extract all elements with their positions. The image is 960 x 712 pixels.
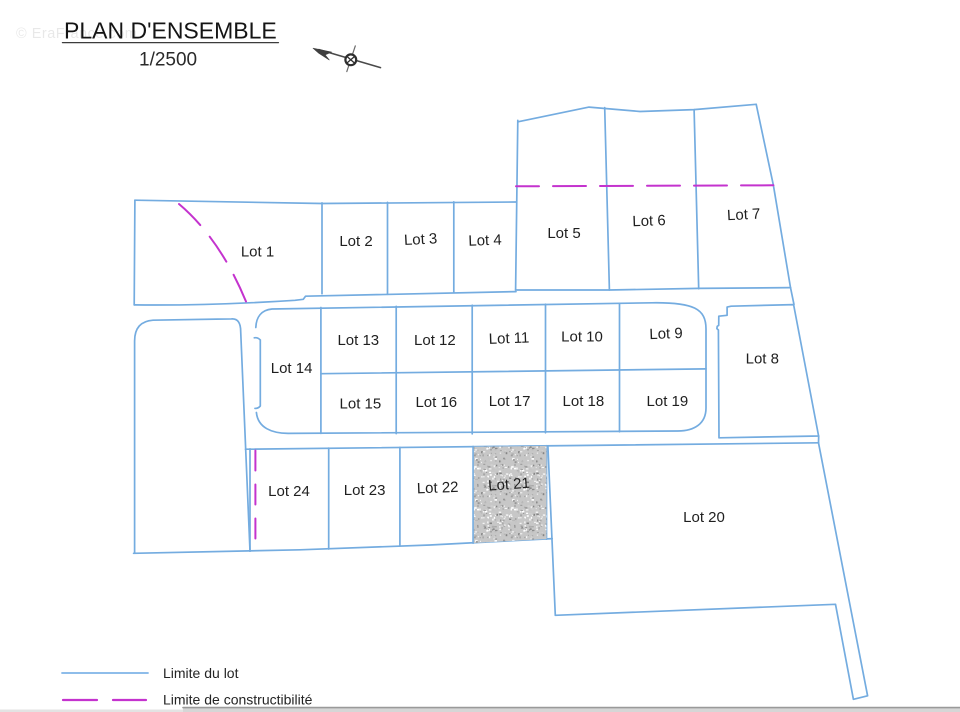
svg-text:Lot 13: Lot 13 (337, 332, 379, 349)
svg-text:Lot 11: Lot 11 (488, 329, 529, 347)
svg-text:Lot 5: Lot 5 (547, 225, 580, 242)
svg-text:Lot 16: Lot 16 (415, 394, 457, 411)
svg-text:Lot 15: Lot 15 (340, 395, 382, 412)
svg-text:Lot 12: Lot 12 (414, 332, 456, 349)
svg-text:Lot 24: Lot 24 (268, 483, 310, 500)
svg-text:Lot 3: Lot 3 (404, 230, 438, 249)
svg-text:Lot 14: Lot 14 (271, 360, 313, 377)
svg-text:Lot 22: Lot 22 (416, 479, 458, 497)
svg-text:Lot 8: Lot 8 (746, 350, 779, 367)
svg-text:Lot 23: Lot 23 (344, 482, 386, 499)
svg-text:Limite du lot: Limite du lot (163, 665, 239, 681)
svg-text:Lot 18: Lot 18 (563, 393, 605, 410)
svg-text:Lot 2: Lot 2 (339, 233, 372, 250)
svg-text:Lot 20: Lot 20 (683, 509, 725, 526)
svg-text:Lot 10: Lot 10 (561, 329, 603, 346)
svg-text:Lot 4: Lot 4 (468, 232, 502, 250)
svg-text:Lot 21: Lot 21 (488, 475, 531, 495)
svg-text:1/2500: 1/2500 (139, 50, 197, 71)
svg-text:Lot 7: Lot 7 (727, 206, 761, 225)
svg-text:Lot 9: Lot 9 (649, 325, 683, 343)
svg-text:Lot 17: Lot 17 (489, 393, 531, 410)
svg-text:PLAN D'ENSEMBLE: PLAN D'ENSEMBLE (64, 18, 277, 44)
svg-text:Lot 1: Lot 1 (241, 244, 274, 261)
svg-text:Limite de constructibilité: Limite de constructibilité (163, 692, 313, 708)
svg-text:Lot 19: Lot 19 (647, 393, 689, 410)
svg-text:Lot 6: Lot 6 (632, 212, 666, 230)
